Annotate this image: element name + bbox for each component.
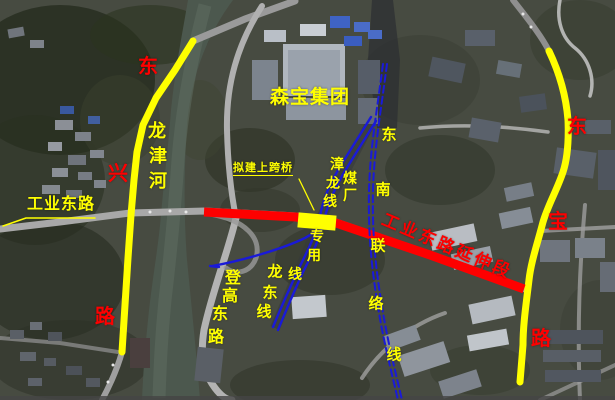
dongbao-road-highlight [520,51,568,382]
industrial-east-road-leader [3,218,95,226]
proposed-bridge-box [297,212,336,230]
annotation-overlay [0,0,615,400]
satellite-map: 工业东路 拟建上跨桥 森宝集团 工业东路延伸段 龙 津 河 东 兴 路 东 宝 … [0,0,615,400]
southeast-link-dashed-line-2 [373,64,402,400]
longdong-rail-line [212,222,322,266]
red-extension-highlight [204,212,524,289]
dongxing-road-highlight [122,41,193,352]
longdong-line-end-tick [210,266,219,267]
proposed-bridge-leader [299,179,314,210]
